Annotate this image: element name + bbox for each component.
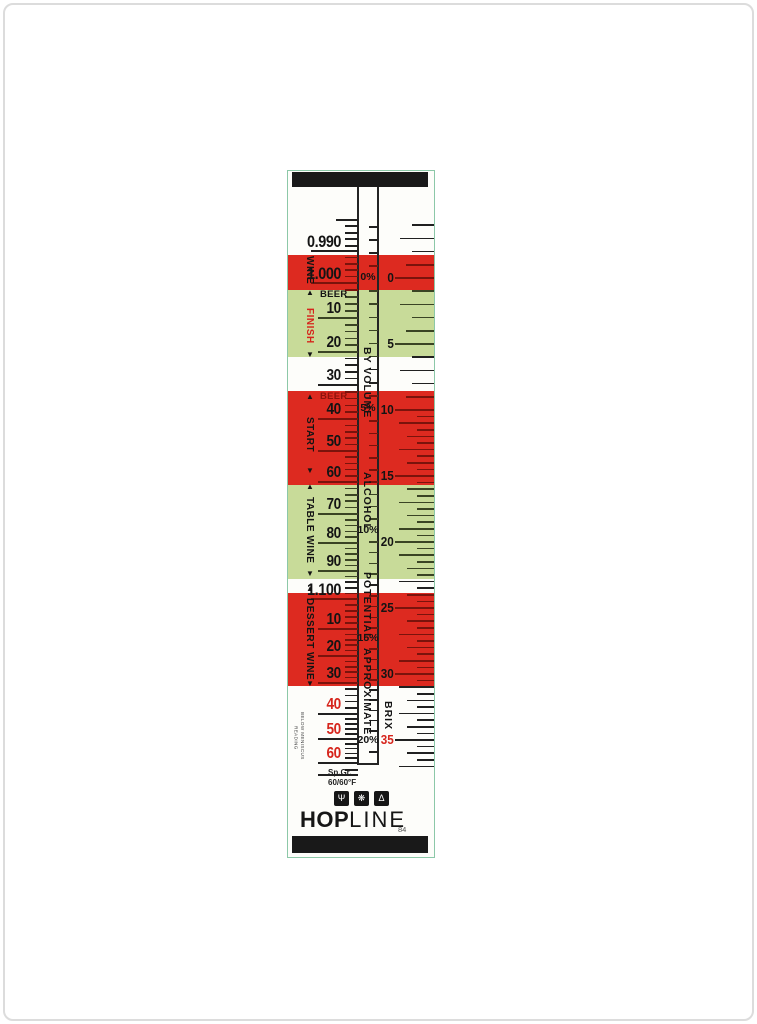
range-down-arrow-icon: ▼ bbox=[304, 350, 316, 359]
range-down-arrow-icon: ▼ bbox=[304, 569, 316, 578]
brix-label: 5 bbox=[368, 337, 394, 350]
brix-tick bbox=[407, 594, 434, 596]
brix-tick bbox=[417, 429, 434, 431]
brix-tick bbox=[399, 660, 434, 662]
range-down-arrow-icon: ▼ bbox=[304, 679, 316, 688]
sg-minor-tick bbox=[345, 748, 358, 750]
brix-major-tick bbox=[395, 541, 434, 543]
brix-tick bbox=[417, 667, 434, 669]
brix-tick bbox=[407, 620, 434, 622]
sg-major-tick bbox=[318, 762, 358, 764]
hydrometer-scale-strip: 0.9901.0001020304050607080901.1001020304… bbox=[287, 170, 435, 858]
sg-label: 60 bbox=[281, 746, 341, 762]
brix-tick bbox=[400, 370, 434, 372]
brix-tick bbox=[417, 614, 434, 616]
brix-tick bbox=[400, 238, 434, 240]
percent-tick bbox=[369, 303, 378, 305]
brix-tick bbox=[406, 396, 434, 398]
brix-tick bbox=[412, 317, 434, 319]
brix-tick bbox=[399, 528, 434, 530]
percent-tick bbox=[369, 226, 378, 228]
sg-minor-tick bbox=[345, 769, 358, 771]
sg-minor-tick bbox=[345, 263, 358, 265]
range-up-arrow-icon: ▲ bbox=[304, 482, 316, 491]
brix-tick bbox=[412, 356, 434, 358]
sg-major-tick bbox=[318, 384, 358, 386]
sg-major-tick bbox=[318, 682, 358, 684]
percent-tick bbox=[369, 445, 378, 447]
brix-tick bbox=[417, 653, 434, 655]
mid-scale-word: APPROXIMATE bbox=[356, 651, 378, 733]
percent-tick bbox=[369, 252, 378, 254]
brix-tick bbox=[417, 640, 434, 642]
brix-tick bbox=[399, 502, 434, 504]
range-up-arrow-icon: ▲ bbox=[304, 584, 316, 593]
brix-tick bbox=[417, 574, 434, 576]
brix-tick bbox=[417, 508, 434, 510]
brix-tick bbox=[399, 422, 434, 424]
range-up-arrow-icon: ▲ bbox=[304, 288, 316, 297]
brix-tick bbox=[417, 601, 434, 603]
sg-major-tick bbox=[318, 351, 358, 353]
brix-tick bbox=[417, 561, 434, 563]
beer-label: BEER bbox=[320, 391, 344, 402]
brix-tick bbox=[417, 455, 434, 457]
brix-tick bbox=[400, 304, 434, 306]
sg-minor-tick bbox=[345, 444, 358, 446]
sg-minor-tick bbox=[345, 225, 358, 227]
brix-label: 30 bbox=[368, 667, 394, 680]
brix-scale-title: BRIX bbox=[380, 702, 396, 729]
brix-tick bbox=[399, 686, 434, 688]
sg-major-tick bbox=[318, 628, 358, 630]
range-up-arrow-icon: ▲ bbox=[304, 392, 316, 401]
sg-minor-tick bbox=[345, 310, 358, 312]
brix-major-tick bbox=[395, 607, 434, 609]
finish-label: FINISH bbox=[303, 302, 316, 349]
brix-tick bbox=[417, 535, 434, 537]
brix-tick bbox=[407, 462, 434, 464]
percent-tick bbox=[369, 265, 378, 267]
sg-medium-tick bbox=[336, 219, 358, 221]
brix-tick bbox=[407, 700, 434, 702]
start-label: START bbox=[303, 406, 316, 463]
sg-major-tick bbox=[318, 542, 358, 544]
scale-layer: 0.9901.0001020304050607080901.1001020304… bbox=[288, 171, 434, 857]
brix-tick bbox=[399, 554, 434, 556]
percent-tick bbox=[369, 751, 378, 753]
brix-major-tick bbox=[395, 277, 434, 279]
sg-minor-tick bbox=[345, 232, 358, 234]
brix-label: 15 bbox=[368, 469, 394, 482]
brix-tick bbox=[417, 587, 434, 589]
table-wine-label: TABLE WINE bbox=[303, 493, 316, 568]
sg-label: 0.990 bbox=[281, 233, 341, 250]
brix-label: 35 bbox=[368, 733, 394, 746]
sg-minor-tick bbox=[345, 245, 358, 247]
brix-label: 25 bbox=[368, 601, 394, 614]
sg-minor-tick bbox=[345, 324, 358, 326]
brix-tick bbox=[417, 733, 434, 735]
brix-major-tick bbox=[395, 475, 434, 477]
brix-tick bbox=[407, 488, 434, 490]
brix-tick bbox=[399, 766, 434, 768]
percent-tick bbox=[369, 552, 378, 554]
brix-tick bbox=[417, 759, 434, 761]
brix-tick bbox=[399, 581, 434, 583]
brix-tick bbox=[417, 746, 434, 748]
brix-tick bbox=[417, 548, 434, 550]
brix-tick bbox=[417, 680, 434, 682]
wine-label: WINE bbox=[303, 253, 316, 287]
brix-tick bbox=[407, 726, 434, 728]
brix-tick bbox=[407, 515, 434, 517]
sg-major-tick bbox=[318, 418, 358, 420]
sg-label: 50 bbox=[281, 722, 341, 738]
scanned-hydrometer-sheet: 0.9901.0001020304050607080901.1001020304… bbox=[0, 0, 757, 1024]
brix-tick bbox=[417, 495, 434, 497]
sg-major-tick bbox=[318, 481, 358, 483]
range-down-arrow-icon: ▼ bbox=[304, 466, 316, 475]
percent-tick bbox=[369, 317, 378, 319]
brix-tick bbox=[406, 330, 434, 332]
brix-tick bbox=[417, 469, 434, 471]
sg-label: 30 bbox=[281, 368, 341, 384]
brix-major-tick bbox=[395, 739, 434, 741]
brix-tick bbox=[417, 442, 434, 444]
brix-tick bbox=[417, 693, 434, 695]
brix-tick bbox=[399, 449, 434, 451]
sg-major-tick bbox=[318, 738, 358, 740]
brix-label: 0 bbox=[368, 271, 394, 284]
brix-major-tick bbox=[395, 343, 434, 345]
percent-tick bbox=[369, 239, 378, 241]
brix-tick bbox=[417, 627, 434, 629]
sg-scale-end-line bbox=[318, 774, 358, 776]
percent-tick bbox=[369, 290, 378, 292]
brix-tick bbox=[412, 290, 434, 292]
brix-label: 10 bbox=[368, 403, 394, 416]
brix-tick bbox=[407, 436, 434, 438]
brix-tick bbox=[417, 521, 434, 523]
brix-tick bbox=[406, 264, 434, 266]
sg-minor-tick bbox=[345, 303, 358, 305]
sg-major-tick bbox=[318, 713, 358, 715]
sg-minor-tick bbox=[345, 257, 358, 259]
brix-tick bbox=[407, 647, 434, 649]
dessert-wine-label: DESSERT WINE bbox=[303, 597, 316, 681]
brix-tick bbox=[407, 752, 434, 754]
brix-tick bbox=[412, 251, 434, 253]
brix-tick bbox=[417, 416, 434, 418]
sg-minor-tick bbox=[345, 269, 358, 271]
brix-tick bbox=[399, 634, 434, 636]
sg-minor-tick bbox=[345, 753, 358, 755]
brix-major-tick bbox=[395, 409, 434, 411]
sg-major-tick bbox=[318, 450, 358, 452]
beer-label: BEER bbox=[320, 289, 344, 300]
sg-minor-tick bbox=[345, 553, 358, 555]
sg-label: 40 bbox=[281, 697, 341, 713]
mid-column-closure bbox=[357, 763, 379, 765]
brix-tick bbox=[417, 706, 434, 708]
sg-major-tick bbox=[318, 317, 358, 319]
brix-label: 20 bbox=[368, 535, 394, 548]
brix-tick bbox=[417, 482, 434, 484]
brix-tick bbox=[417, 719, 434, 721]
brix-tick bbox=[399, 713, 434, 715]
sg-minor-tick bbox=[345, 757, 358, 759]
sg-major-tick bbox=[318, 570, 358, 572]
brix-tick bbox=[407, 568, 434, 570]
brix-major-tick bbox=[395, 673, 434, 675]
sg-major-tick bbox=[318, 655, 358, 657]
sg-major-tick bbox=[318, 513, 358, 515]
brix-tick bbox=[412, 383, 434, 385]
brix-tick bbox=[412, 224, 434, 226]
sg-minor-tick bbox=[345, 238, 358, 240]
